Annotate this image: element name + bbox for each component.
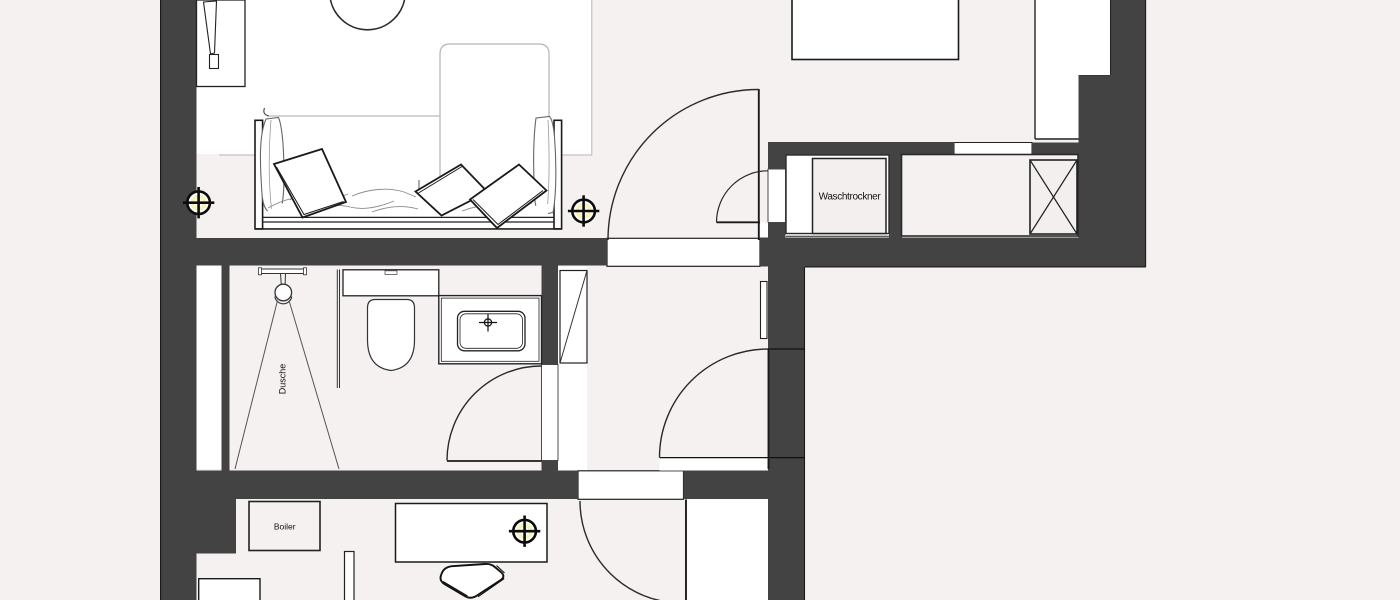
svg-text:Dusche: Dusche	[278, 364, 288, 395]
svg-text:Boiler: Boiler	[274, 522, 296, 532]
svg-text:Waschtrockner: Waschtrockner	[819, 192, 882, 203]
